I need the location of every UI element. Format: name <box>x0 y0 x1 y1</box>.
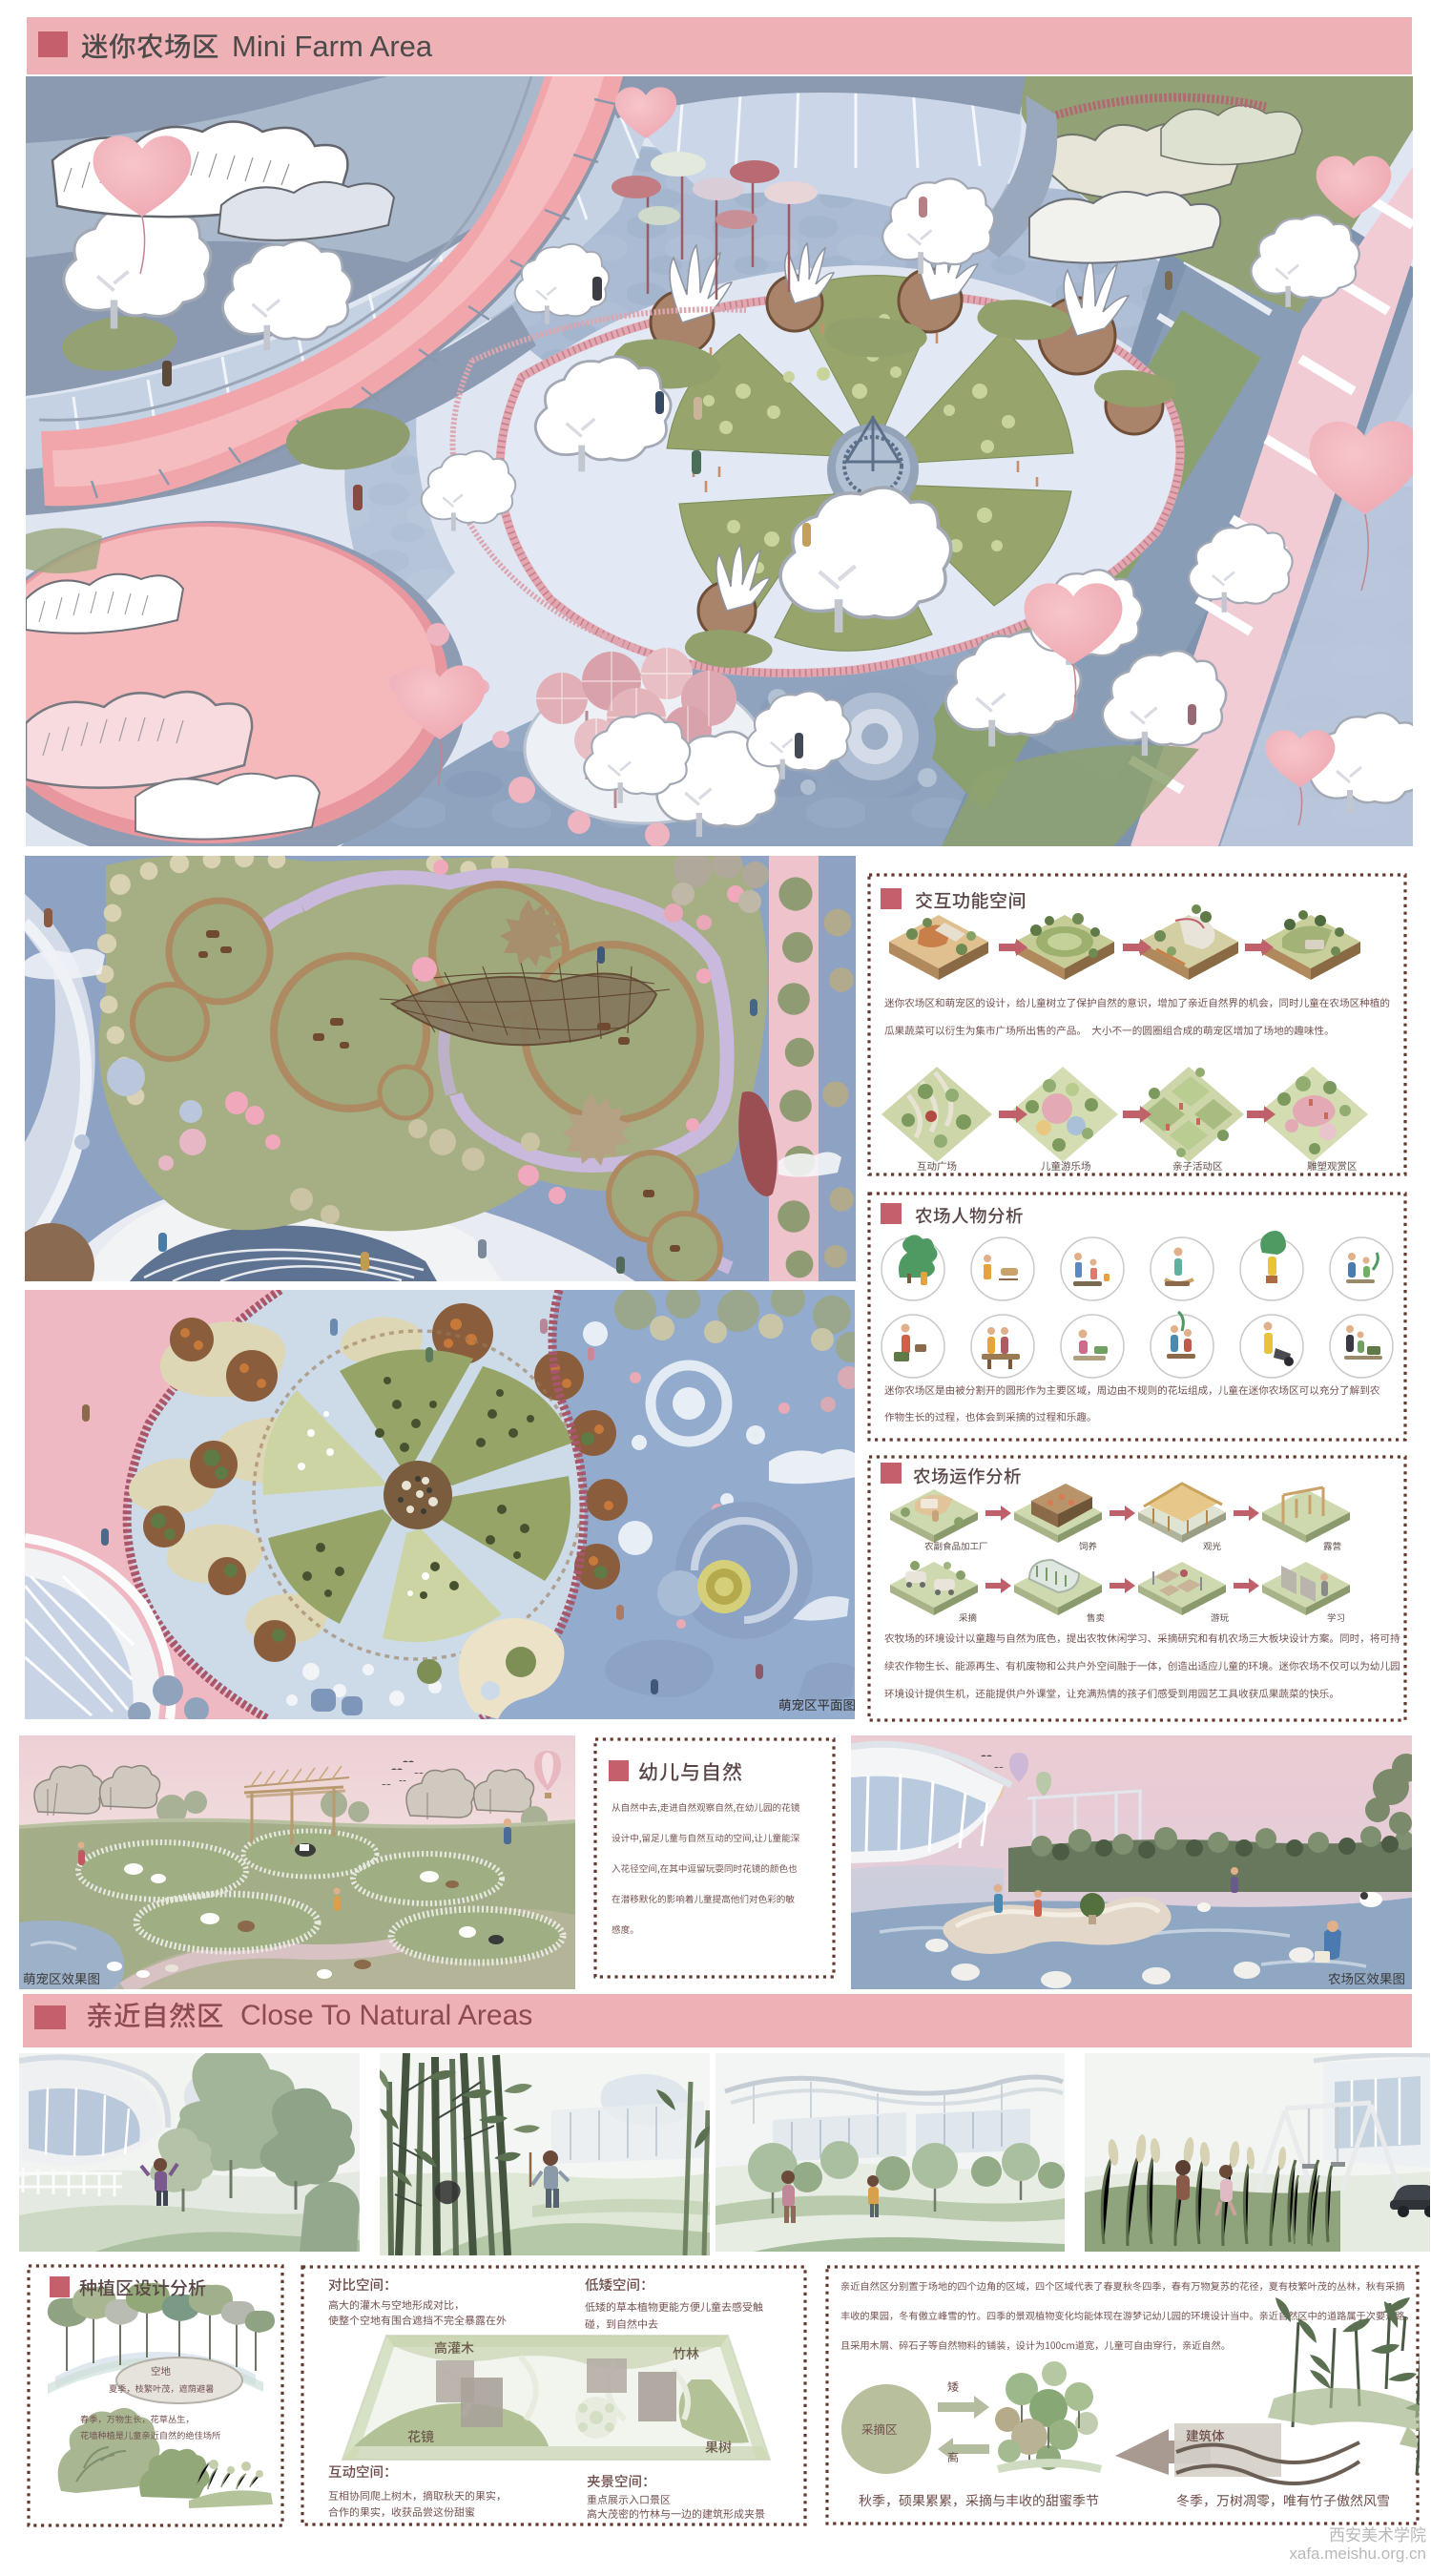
svg-text:Mini Farm Area: Mini Farm Area <box>232 30 433 63</box>
svg-text:Close To Natural Areas: Close To Natural Areas <box>240 2000 532 2031</box>
